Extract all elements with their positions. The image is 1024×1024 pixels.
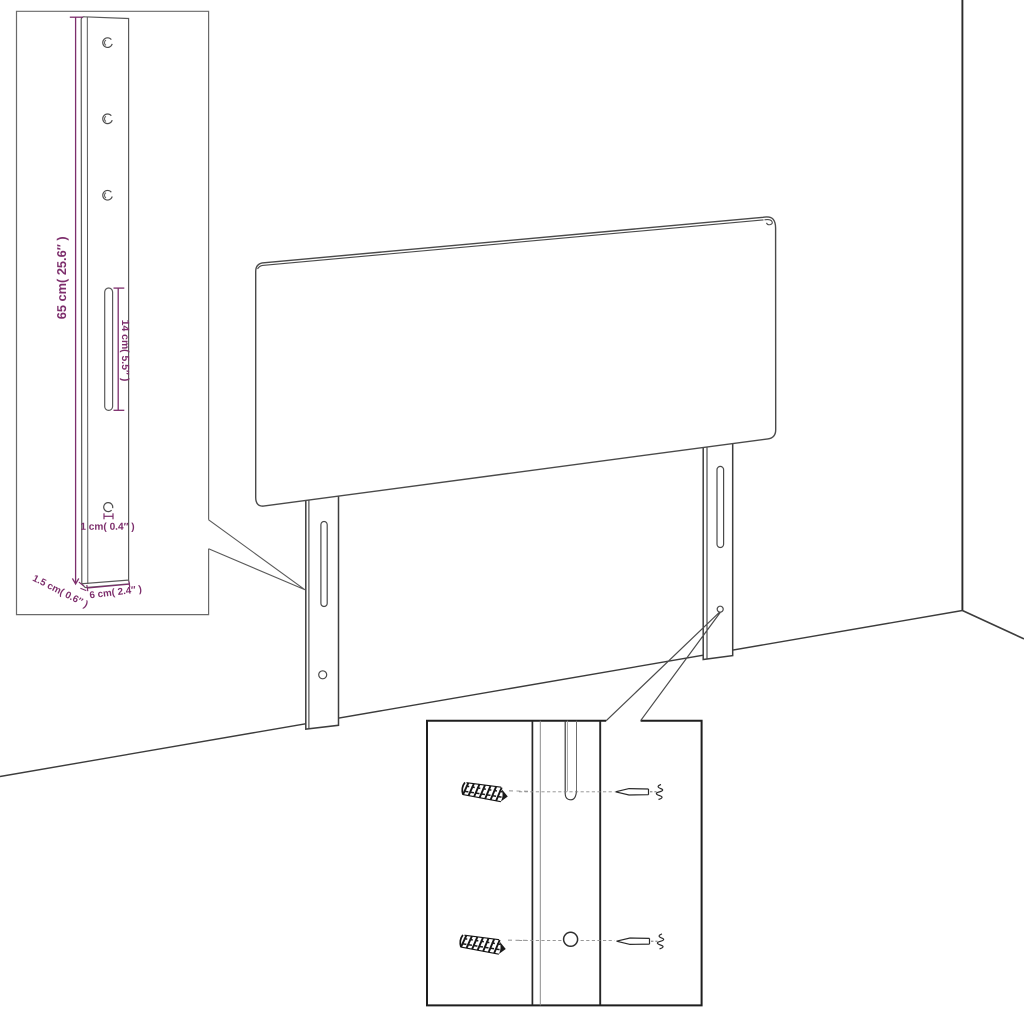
svg-text:14 cm( 5.5″ ): 14 cm( 5.5″ ) (119, 320, 130, 382)
svg-text:65 cm( 25.6″ ): 65 cm( 25.6″ ) (54, 236, 69, 319)
svg-text:1 cm( 0.4″ ): 1 cm( 0.4″ ) (80, 522, 134, 533)
